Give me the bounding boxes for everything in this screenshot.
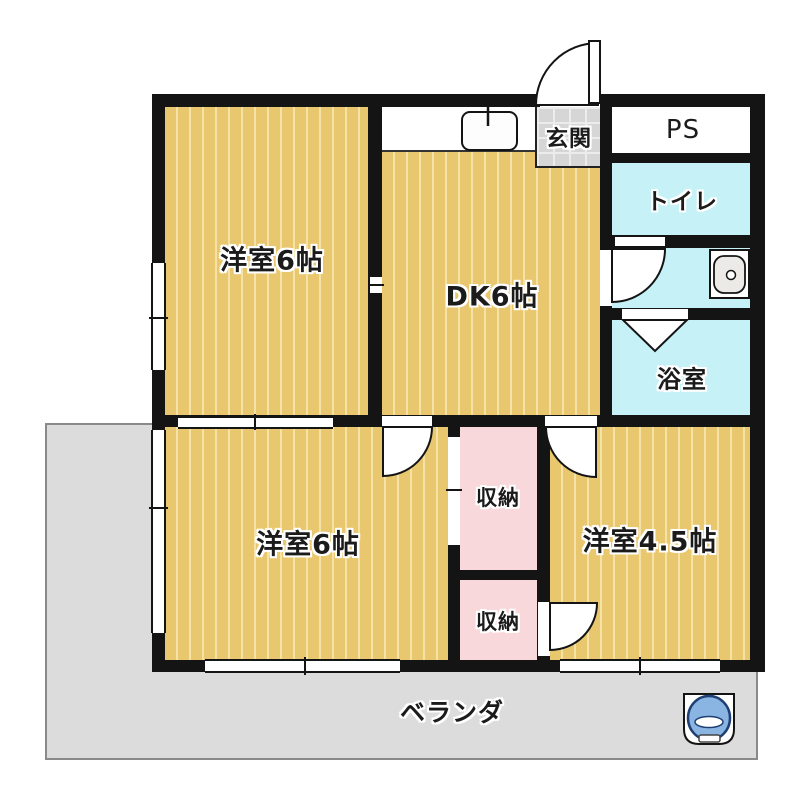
door-opening-washroom (600, 250, 612, 306)
entrance-door-opening (540, 94, 600, 107)
room-label-western45: 洋室4.5帖 (583, 520, 718, 559)
closet-upper-opening (448, 437, 460, 545)
wall-washroom-bottom (612, 308, 750, 320)
door-opening-western6-bottom (382, 416, 432, 427)
room-label-bath: 浴室 (657, 360, 707, 395)
room-label-entrance: 玄関 (546, 121, 592, 153)
wall-gap-top-rooms (370, 277, 382, 293)
window-bottom-left (205, 659, 400, 673)
toilet-door-leaf (613, 235, 667, 248)
room-label-dk: DK6帖 (445, 275, 538, 314)
room-label-closet-upper: 収納 (476, 482, 520, 512)
window-left-lower (151, 430, 166, 633)
window-left-upper (151, 263, 166, 370)
washroom-floor (612, 248, 750, 308)
wall-right (750, 94, 765, 672)
room-label-western6-bottom: 洋室6帖 (256, 523, 360, 562)
room-label-toilet: トイレ (646, 182, 718, 216)
door-opening-closet-lower (538, 602, 550, 656)
window-bottom-right (560, 659, 720, 673)
wall-closet-divider (460, 570, 537, 580)
wall-top (152, 94, 765, 107)
wall-top-rooms-divider (368, 107, 382, 418)
floor-plan: 洋室6帖 DK6帖 玄関 PS トイレ 浴室 洋室6帖 収納 収納 洋室4.5帖… (0, 0, 800, 800)
kitchen-counter (382, 107, 535, 152)
room-label-pipe-space: PS (666, 115, 700, 145)
room-label-western6-top: 洋室6帖 (220, 239, 324, 278)
room-label-veranda: ベランダ (400, 693, 504, 729)
sliding-door-between-western-rooms (178, 416, 333, 429)
wall-ps-bottom (612, 153, 750, 163)
room-label-closet-lower: 収納 (476, 606, 520, 636)
door-opening-western45 (545, 416, 597, 427)
